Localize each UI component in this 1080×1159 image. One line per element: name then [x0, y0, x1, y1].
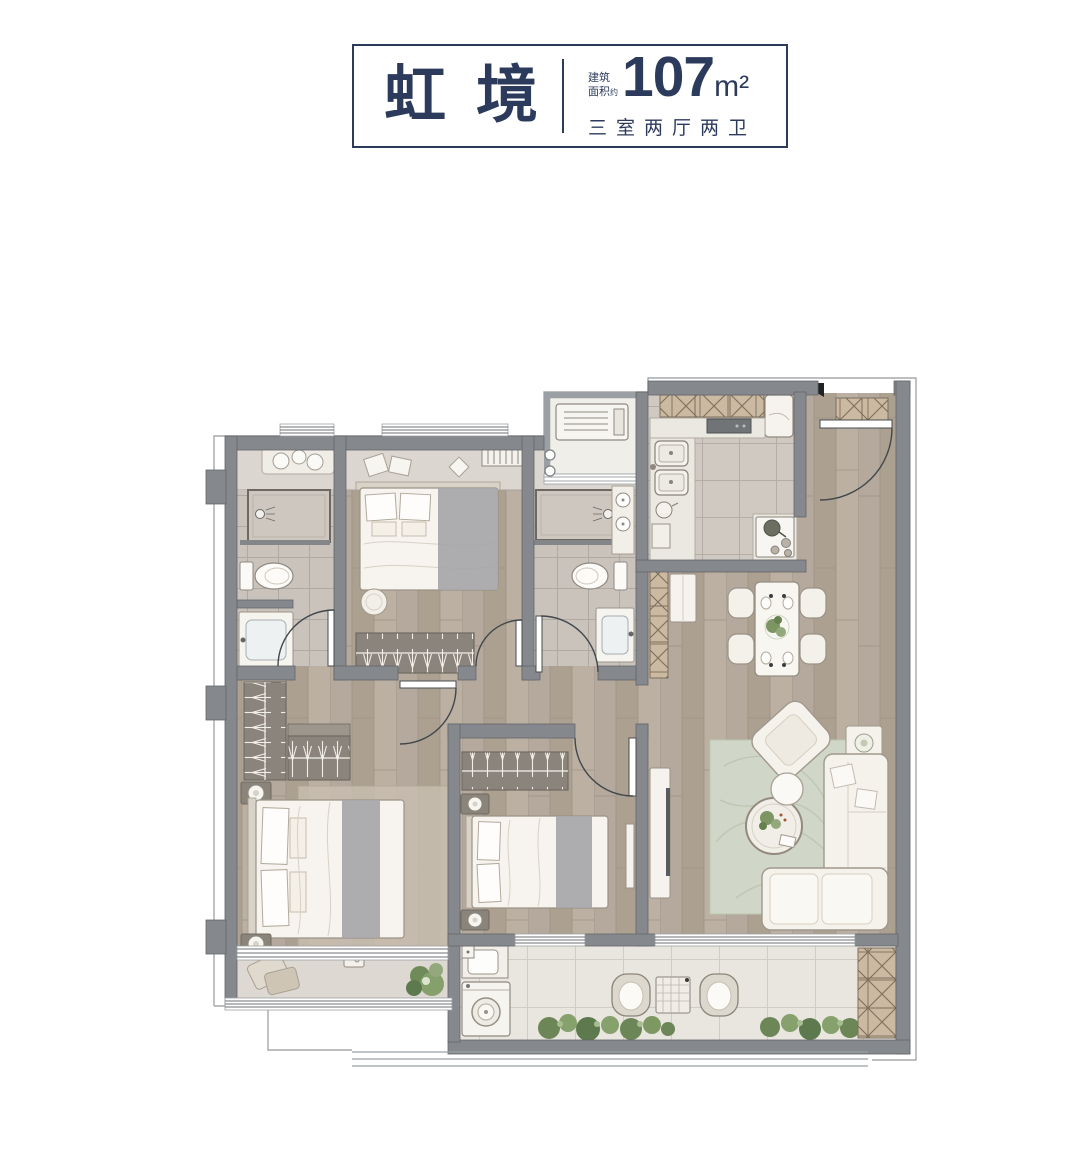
washing-machine: [462, 982, 510, 1036]
tv-console: [650, 768, 670, 898]
ac-unit: [556, 404, 628, 440]
tv: [666, 788, 670, 876]
page: 虹境 建筑 面积约 107 m² 三室两厅两卫: [0, 0, 1080, 1159]
drain-pipe: [545, 450, 555, 460]
nightstand: [461, 910, 489, 930]
shower-1: [248, 490, 330, 542]
wash-counter-2: [612, 486, 634, 554]
toilet-2: [572, 562, 627, 590]
balcony-chair: [612, 974, 650, 1016]
pouf: [361, 589, 387, 615]
wall: [522, 436, 534, 680]
drain-pipe: [545, 466, 555, 476]
wall: [794, 392, 806, 517]
sofa-pillow: [855, 789, 877, 810]
wall: [334, 436, 346, 680]
nesting-table: [771, 773, 803, 805]
column: [206, 920, 226, 954]
wall: [648, 381, 818, 395]
shower-2: [536, 490, 618, 540]
small-appliance: [652, 524, 670, 548]
shower-glass-1: [240, 540, 330, 545]
column: [206, 686, 226, 720]
dining-table: [755, 582, 799, 676]
wall: [228, 436, 544, 450]
window-bed2-top: [382, 424, 508, 436]
storage-column: [858, 948, 898, 1038]
ac-platform: [544, 392, 642, 484]
balcony-table: [656, 977, 690, 1013]
wall: [896, 381, 910, 1054]
wall-shelf: [626, 824, 634, 888]
floor-plan-image: [0, 0, 1080, 1159]
wall: [237, 666, 295, 680]
shower-glass-2: [534, 540, 618, 545]
upper-cabinets: [660, 395, 764, 417]
bath1-stub-wall: [237, 600, 293, 608]
vanity-2: [596, 608, 634, 662]
bed-2: [356, 482, 500, 590]
wall: [598, 666, 636, 680]
wall: [458, 666, 476, 680]
bed-runner: [342, 800, 380, 938]
master-bed: [248, 798, 404, 940]
toilet-1: [240, 562, 293, 590]
window-master-balcony: [225, 998, 452, 1010]
bed-3: [466, 816, 608, 908]
column: [206, 470, 226, 504]
nightstand: [461, 794, 489, 814]
window-balcony-1: [515, 934, 585, 946]
wall: [448, 724, 460, 1042]
fridge: [765, 395, 793, 437]
window-master-south: [237, 946, 448, 960]
bed-runner: [556, 816, 592, 908]
wall: [448, 724, 575, 738]
wall: [636, 724, 648, 946]
laundry-sink: [462, 946, 508, 978]
wall: [636, 392, 648, 685]
wall: [334, 666, 398, 680]
wardrobe-3: [462, 752, 568, 790]
wall: [448, 934, 515, 946]
wall: [636, 560, 806, 572]
wall: [585, 934, 655, 946]
bed-runner: [438, 488, 498, 590]
window-balcony-2: [655, 934, 855, 946]
sofa-pillow: [830, 764, 856, 788]
tall-cabinet: [650, 570, 668, 678]
wall: [855, 934, 898, 946]
cooktop: [753, 514, 797, 560]
pebble-decor: [262, 448, 334, 474]
balcony-chair: [700, 974, 738, 1016]
wall: [225, 436, 237, 1006]
window-bath1-top: [280, 424, 334, 436]
